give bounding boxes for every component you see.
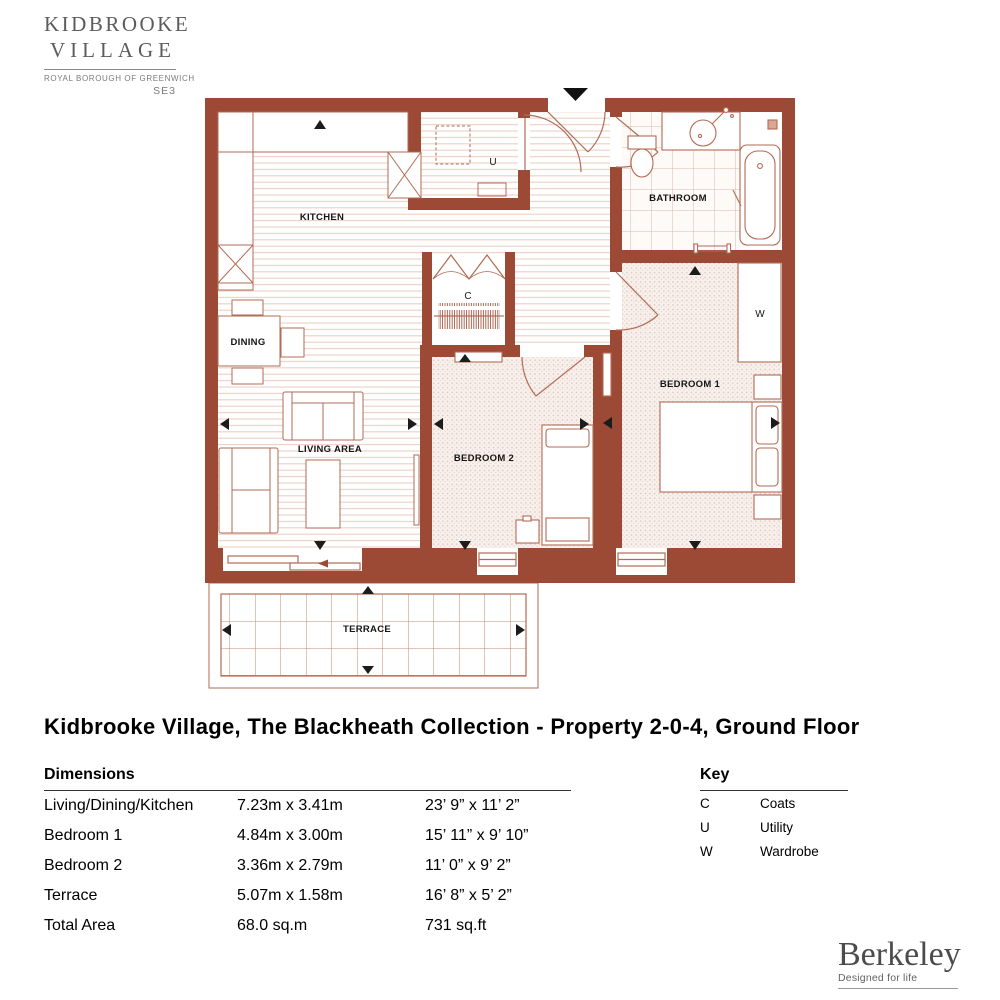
room-label-bathroom: BATHROOM [649,193,707,204]
logo-line2: VILLAGE [44,38,176,63]
coats-rail [434,303,504,329]
terrace-area [209,583,538,688]
room-label-living: LIVING AREA [298,444,362,455]
kidbrooke-village-logo: KIDBROOKE VILLAGE ROYAL BOROUGH OF GREEN… [44,12,176,97]
dimension-row: Total Area 68.0 sq.m 731 sq.ft [44,911,571,941]
room-label-kitchen: KITCHEN [300,212,344,223]
room-label-bedroom2: BEDROOM 2 [454,453,514,464]
dimension-row: Bedroom 2 3.36m x 2.79m 11’ 0” x 9’ 2” [44,851,571,881]
key-item: C Coats [700,791,848,815]
dimension-name: Terrace [44,887,237,905]
logo-subtitle: ROYAL BOROUGH OF GREENWICH [44,74,176,83]
logo-divider [44,69,176,70]
floorplan-drawing: KITCHEN DINING LIVING AREA BEDROOM 1 BED… [195,85,810,700]
page-title: Kidbrooke Village, The Blackheath Collec… [44,714,964,740]
dimension-name: Living/Dining/Kitchen [44,797,237,815]
dimension-imperial: 15’ 11” x 9’ 10” [425,827,571,845]
key-label: Coats [760,796,795,811]
berkeley-logo: Berkeley Designed for life [838,938,958,989]
dimension-row: Living/Dining/Kitchen 7.23m x 3.41m 23’ … [44,791,571,821]
logo-line1: KIDBROOKE [44,12,176,37]
dimension-row: Bedroom 1 4.84m x 3.00m 15’ 11” x 9’ 10” [44,821,571,851]
key-code: C [700,796,760,811]
dimension-name: Total Area [44,917,237,935]
dimension-imperial: 23’ 9” x 11’ 2” [425,797,571,815]
floorplan-page: KIDBROOKE VILLAGE ROYAL BOROUGH OF GREEN… [0,0,1000,1000]
room-label-utility: U [489,157,496,168]
dimension-metric: 68.0 sq.m [237,917,425,935]
key-heading: Key [700,766,848,791]
dimension-imperial: 731 sq.ft [425,917,571,935]
room-label-bedroom1: BEDROOM 1 [660,379,721,390]
key-label: Utility [760,820,793,835]
dimension-imperial: 16’ 8” x 5’ 2” [425,887,571,905]
dimension-name: Bedroom 1 [44,827,237,845]
room-label-coats: C [464,291,471,302]
key-code: W [700,844,760,859]
berkeley-tagline: Designed for life [838,972,958,989]
dimension-metric: 5.07m x 1.58m [237,887,425,905]
key-legend: Key C Coats U Utility W Wardrobe [700,766,848,863]
dimension-metric: 3.36m x 2.79m [237,857,425,875]
dimensions-heading: Dimensions [44,766,571,791]
room-label-dining: DINING [230,337,265,348]
room-label-wardrobe: W [755,309,765,320]
dimension-row: Terrace 5.07m x 1.58m 16’ 8” x 5’ 2” [44,881,571,911]
logo-postcode: SE3 [44,85,176,97]
key-code: U [700,820,760,835]
key-item: U Utility [700,815,848,839]
dimensions-table: Dimensions Living/Dining/Kitchen 7.23m x… [44,766,571,941]
dimension-metric: 7.23m x 3.41m [237,797,425,815]
room-label-terrace: TERRACE [343,624,391,635]
key-item: W Wardrobe [700,839,848,863]
key-label: Wardrobe [760,844,819,859]
berkeley-name: Berkeley [838,938,958,972]
dimension-imperial: 11’ 0” x 9’ 2” [425,857,571,875]
dimension-metric: 4.84m x 3.00m [237,827,425,845]
dimension-name: Bedroom 2 [44,857,237,875]
